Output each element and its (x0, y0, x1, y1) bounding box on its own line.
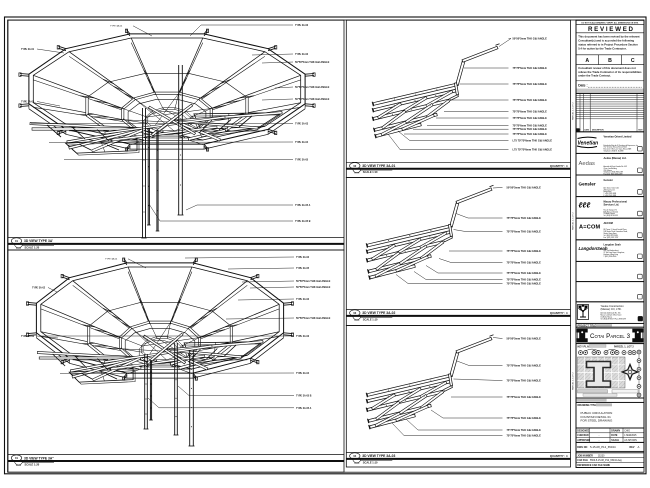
svg-text:75*75*6mm THK G&I ANGLE: 75*75*6mm THK G&I ANGLE (507, 434, 542, 438)
svg-text:Tel: (852) 3922 9000: Tel: (852) 3922 9000 (604, 235, 618, 237)
svg-text:75*75*6mm THK G&I ANGLE: 75*75*6mm THK G&I ANGLE (513, 127, 548, 131)
svg-text:75*75*6mm THK G&I ANGLE: 75*75*6mm THK G&I ANGLE (507, 261, 542, 265)
svg-text:50*50*5mm THK G&I ANGLE: 50*50*5mm THK G&I ANGLE (296, 279, 331, 283)
svg-text:KEY PLAN: KEY PLAN (578, 344, 591, 348)
svg-text:QUANTITY : 4: QUANTITY : 4 (550, 454, 568, 458)
svg-text:Rua de Xangai 175: Rua de Xangai 175 (604, 209, 617, 211)
svg-text:FOR STEEL DRAWING: FOR STEEL DRAWING (581, 419, 613, 423)
svg-text:75*75*6mm THK G&I ANGLE: 75*75*6mm THK G&I ANGLE (507, 278, 542, 282)
svg-text:REFERENCE CAD FILE NAME: REFERENCE CAD FILE NAME (577, 464, 610, 467)
svg-text:DRAWING TITLE:: DRAWING TITLE: (578, 404, 599, 407)
svg-text:B: B (608, 58, 612, 64)
svg-text:ℓℓℓ: ℓℓℓ (579, 201, 592, 210)
svg-text:75*75*6mm THK G&I ANGLE: 75*75*6mm THK G&I ANGLE (513, 116, 548, 120)
svg-text:3D VIEW TYPE 3A-01: 3D VIEW TYPE 3A-01 (362, 164, 395, 168)
svg-text:Aedas: Aedas (579, 161, 596, 167)
svg-text:31530: 31530 (598, 455, 605, 457)
svg-text:SCALE 1:10: SCALE 1:10 (363, 460, 378, 464)
svg-text:5-15-08_P12_65434: 5-15-08_P12_65434 (590, 445, 616, 449)
svg-text:SCALE 1:10: SCALE 1:10 (363, 170, 378, 174)
svg-text:75*75*6mm THK G&I ANGLE: 75*75*6mm THK G&I ANGLE (507, 428, 542, 432)
svg-text:Consultant review of this: Consultant review of this document does … (578, 66, 636, 70)
svg-text:Telephone: (853) 2833-1389: Telephone: (853) 2833-1389 (604, 172, 624, 174)
svg-text:Langdon Seah: Langdon Seah (604, 243, 622, 246)
svg-text:Tel: (853) 2878-5133: Tel: (853) 2878-5133 (604, 215, 618, 217)
svg-text:PARCEL 1, LOT 2: PARCEL 1, LOT 2 (614, 345, 634, 348)
svg-text:TYPE 3A-02: TYPE 3A-02 (21, 101, 35, 104)
svg-text:TYPE 3A-03: TYPE 3A-03 (295, 123, 309, 126)
svg-text:TYPE 3A-02: TYPE 3A-02 (295, 53, 309, 56)
svg-text:relieve the Trade Contracto: relieve the Trade Contractor of its resp… (578, 70, 642, 74)
svg-text:75*75*6mm THK G&I ANGLE: 75*75*6mm THK G&I ANGLE (513, 109, 548, 113)
svg-text:75*75*6mm THK G&I ANGLE: 75*75*6mm THK G&I ANGLE (507, 230, 542, 234)
svg-text:SCALE 1:20: SCALE 1:20 (25, 245, 40, 249)
svg-text:CAD FILE: CAD FILE (577, 459, 588, 462)
svg-text:Gensler: Gensler (604, 179, 613, 182)
svg-text:Venetian: Venetian (578, 141, 599, 147)
svg-text:REV: REV (630, 446, 635, 449)
svg-text:3D VIEW TYPE 3A'': 3D VIEW TYPE 3A'' (24, 456, 54, 460)
svg-text:75*75*6mm THK G&I ANGLE: 75*75*6mm THK G&I ANGLE (507, 216, 542, 220)
svg-text:L75 75*75*6mm THK G&I ANGLE: L75 75*75*6mm THK G&I ANGLE (513, 139, 553, 143)
svg-text:75*75*6mm THK G&I ANGLE: 75*75*6mm THK G&I ANGLE (507, 395, 542, 399)
svg-text:PARCEL 1, LOT 2: PARCEL 1, LOT 2 (572, 102, 575, 120)
svg-text:COTAI PARCEL 3: COTAI PARCEL 3 (590, 333, 631, 340)
svg-text:TYPE 3A-01: TYPE 3A-01 (21, 48, 35, 51)
svg-text:JOB NUMBER: JOB NUMBER (577, 455, 593, 457)
svg-text:T +852.2505.1838: T +852.2505.1838 (604, 193, 617, 195)
svg-text:CHIO: CHIO (624, 430, 630, 432)
svg-text:75*75*6mm THK G&I ANGLE: 75*75*6mm THK G&I ANGLE (507, 416, 542, 420)
svg-text:APPROVED: APPROVED (577, 439, 590, 442)
svg-text:TYPE 3A-05 B: TYPE 3A-05 B (295, 220, 311, 223)
svg-text:TYPE 3A-03: TYPE 3A-03 (296, 335, 310, 338)
svg-text:SCALE: SCALE (611, 439, 619, 442)
svg-text:This document has been rev: This document has been revised by the re… (578, 34, 639, 38)
svg-text:T (852) 2830-3500: T (852) 2830-3500 (604, 256, 617, 258)
svg-text:3D VIEW TYPE 3A': 3D VIEW TYPE 3A' (24, 239, 53, 243)
svg-text:50*50*5mm THK G&I ANGLE: 50*50*5mm THK G&I ANGLE (296, 316, 331, 320)
svg-text:CHECKED: CHECKED (577, 435, 589, 437)
svg-text:50*50*5mm THK G&I ANGLE: 50*50*5mm THK G&I ANGLE (296, 285, 331, 289)
svg-text:TYPE 3A-02: TYPE 3A-02 (296, 298, 310, 301)
svg-text:QUANTITY : 4: QUANTITY : 4 (550, 311, 568, 315)
svg-text:TYPE 3A-05: TYPE 3A-05 (295, 159, 309, 162)
svg-text:TYPE 3A-04: TYPE 3A-04 (296, 372, 310, 375)
svg-text:A: A (638, 445, 640, 449)
svg-text:China Law Building: China Law Building (604, 168, 617, 170)
svg-text:L75 75*75*6mm THK G&I ANGLE: L75 75*75*6mm THK G&I ANGLE (513, 148, 553, 152)
svg-text:Gensler: Gensler (579, 182, 596, 187)
svg-text:SCALE 1:20: SCALE 1:20 (25, 462, 40, 466)
svg-text:TYPE 3A-04: TYPE 3A-04 (110, 25, 123, 28)
svg-text:50*50*5mm THK G&I ANGLE: 50*50*5mm THK G&I ANGLE (507, 337, 542, 341)
svg-text:75*75*6mm THK G&I ANGLE: 75*75*6mm THK G&I ANGLE (513, 98, 548, 102)
svg-text:A: A (585, 58, 589, 64)
svg-text:QUANTITY : 4: QUANTITY : 4 (550, 164, 568, 168)
svg-text:Hong Kong: Hong Kong (604, 191, 612, 193)
svg-text:75*75*6mm THK G&I ANGLE: 75*75*6mm THK G&I ANGLE (513, 66, 548, 70)
svg-text:50*50*5mm THK G&I ANGLE: 50*50*5mm THK G&I ANGLE (295, 85, 330, 89)
svg-text:50*50*5mm THK G&I ANGLE: 50*50*5mm THK G&I ANGLE (295, 97, 330, 101)
svg-text:75*75*6mm THK G&I ANGLE: 75*75*6mm THK G&I ANGLE (513, 82, 548, 86)
svg-text:1 MAR2015: 1 MAR2015 (624, 434, 637, 437)
svg-text:DWG NO: DWG NO (577, 446, 587, 449)
svg-text:3D VIEW TYPE 3A-03: 3D VIEW TYPE 3A-03 (362, 454, 395, 458)
svg-text:DO NOT SCALE DRAWING. VERIFY A: DO NOT SCALE DRAWING. VERIFY ALL DIMENSI… (581, 21, 638, 24)
svg-text:DRAWN: DRAWN (611, 429, 620, 432)
svg-text:Consultant(s) and is accord: Consultant(s) and is accorded the follow… (578, 38, 634, 42)
svg-text:75*75*6mm THK G&I ANGLE: 75*75*6mm THK G&I ANGLE (507, 282, 542, 286)
svg-text:AECOM: AECOM (604, 222, 613, 225)
svg-text:TYPE 3A-04: TYPE 3A-04 (105, 258, 118, 261)
svg-text:75*75*6mm THK G&I ANGLE: 75*75*6mm THK G&I ANGLE (507, 249, 542, 253)
svg-text:DESIGNED: DESIGNED (577, 430, 589, 432)
svg-text:Telephone: (853) 81 18-2888: Telephone: (853) 81 18-2888 (604, 151, 624, 153)
svg-text:TYPE 3A-04: TYPE 3A-04 (295, 141, 309, 144)
svg-text:TYPE 3A-02: TYPE 3A-02 (21, 335, 35, 338)
svg-text:TYPE 3A-03: TYPE 3A-03 (295, 24, 309, 27)
svg-text:PARCEL 1, LOT 2: PARCEL 1, LOT 2 (572, 372, 575, 390)
svg-text:PARCEL 1, LOT 2: PARCEL 1, LOT 2 (572, 212, 575, 230)
svg-text:DATE: DATE (611, 434, 618, 437)
svg-text:TYPE 3A-05 A: TYPE 3A-05 A (296, 407, 312, 410)
svg-text:AS SHOWN: AS SHOWN (624, 439, 637, 442)
svg-text:3D VIEW TYPE 3A-02: 3D VIEW TYPE 3A-02 (362, 311, 395, 315)
svg-text:under the Trade Contract.: under the Trade Contract. (578, 74, 611, 78)
svg-text:75*75*6mm THK G&I ANGLE: 75*75*6mm THK G&I ANGLE (513, 124, 548, 128)
svg-text:50*50*5mm THK G&I ANGLE: 50*50*5mm THK G&I ANGLE (507, 186, 542, 190)
svg-text:A=COM: A=COM (579, 225, 600, 231)
svg-text:75*75*6mm THK G&I ANGLE: 75*75*6mm THK G&I ANGLE (507, 364, 542, 368)
svg-text:75*75*6mm THK G&I ANGLE: 75*75*6mm THK G&I ANGLE (507, 379, 542, 383)
svg-text:Venetian Orient Limited: Venetian Orient Limited (604, 136, 632, 139)
svg-text:21/F, Macau: 21/F, Macau (604, 170, 613, 172)
svg-text:75*75*6mm THK G&I ANGLE: 75*75*6mm THK G&I ANGLE (507, 271, 542, 275)
svg-text:Fax: (852) 3922 9797: Fax: (852) 3922 9797 (604, 237, 619, 239)
svg-text:DESCRIPTION: DESCRIPTION (592, 130, 604, 132)
svg-text:TYPE 3A-05: TYPE 3A-05 (296, 267, 310, 270)
svg-text:TYPE 3A-02: TYPE 3A-02 (296, 256, 310, 259)
svg-text:Services Ltd.: Services Ltd. (604, 204, 620, 207)
svg-text:75*75*6mm THK G&I ANGLE: 75*75*6mm THK G&I ANGLE (513, 132, 548, 136)
svg-text:5560-5-15-08_P12_65434.dwg: 5560-5-15-08_P12_65434.dwg (590, 460, 622, 462)
svg-text:Aedas (Macau) Ltd.: Aedas (Macau) Ltd. (604, 157, 627, 160)
svg-text:Kowloon, Hong Kong: Kowloon, Hong Kong (604, 254, 619, 256)
svg-text:(Macau) CO, LTD.: (Macau) CO, LTD. (601, 307, 622, 311)
svg-text:5.4 for action by the Tra: 5.4 for action by the Trade Contractor. (578, 46, 627, 50)
svg-text:TYPE 3A-05 B: TYPE 3A-05 B (296, 395, 312, 398)
svg-text:TYPE 3A-05 A: TYPE 3A-05 A (295, 204, 311, 207)
svg-text:Date :: Date : (578, 84, 587, 88)
svg-text:SCALE 1:10: SCALE 1:10 (363, 317, 378, 321)
svg-text:TYPE 3A-02: TYPE 3A-02 (32, 287, 46, 290)
svg-text:50*50*5mm THK G&I ANGLE: 50*50*5mm THK G&I ANGLE (295, 60, 330, 64)
svg-text:status referred to in Pro: status referred to in Project Procedure … (578, 42, 638, 46)
svg-text:R E V I E W E D: R E V I E W E D (588, 26, 634, 33)
svg-text:C: C (631, 58, 635, 64)
svg-text:50*50*5mm THK G&I ANGLE: 50*50*5mm THK G&I ANGLE (513, 37, 548, 41)
svg-text:Tel: (853) 2878 6277 Fax: 287: Tel: (853) 2878 6277 Fax: 2878 6299 (601, 318, 627, 320)
